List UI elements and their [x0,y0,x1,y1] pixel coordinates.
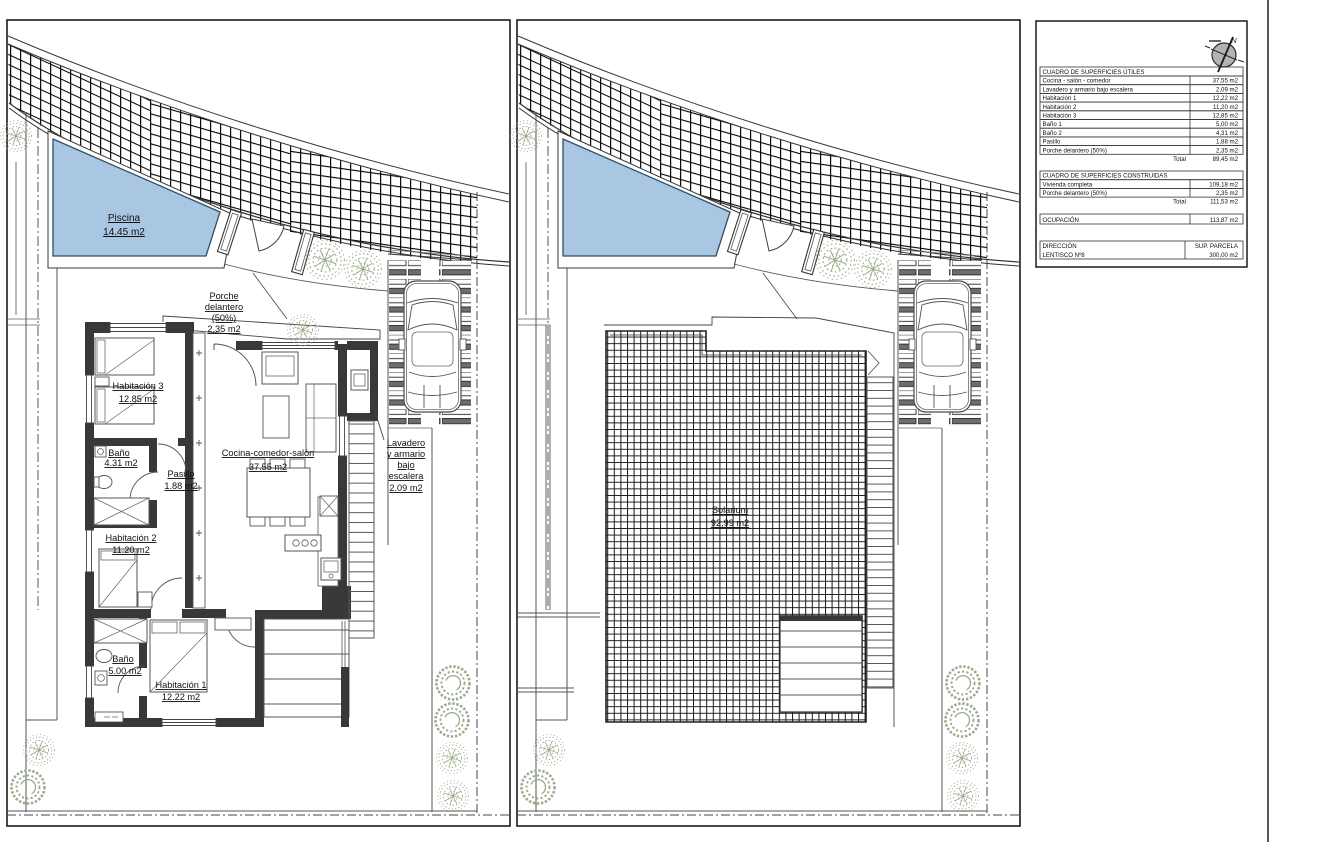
svg-text:Baño 2: Baño 2 [1043,130,1063,137]
svg-text:109,18 m2: 109,18 m2 [1209,181,1238,188]
svg-text:Porche delantero (50%): Porche delantero (50%) [1043,147,1107,154]
svg-text:Piscina: Piscina [108,213,141,224]
svg-text:Habitación 1: Habitación 1 [1043,95,1077,102]
svg-text:11.20 m2: 11.20 m2 [112,545,150,555]
svg-text:12,22 m2: 12,22 m2 [1213,95,1239,102]
svg-text:5.00 m2: 5.00 m2 [108,666,141,676]
svg-text:DIRECCIÓN: DIRECCIÓN [1043,243,1077,250]
svg-text:Habitación 1: Habitación 1 [155,680,206,690]
svg-text:Total: Total [1173,199,1186,206]
svg-text:Pasillo: Pasillo [167,469,194,479]
svg-text:Porche delantero (50%): Porche delantero (50%) [1043,190,1107,197]
svg-text:92,99 m2: 92,99 m2 [711,518,749,528]
svg-text:300,00 m2: 300,00 m2 [1209,252,1238,259]
svg-text:Solarium: Solarium [712,505,749,515]
svg-text:(50%): (50%) [212,313,237,323]
svg-text:y armario: y armario [387,449,425,459]
svg-text:2,35 m2: 2,35 m2 [1216,147,1239,154]
svg-text:1,88 m2: 1,88 m2 [1216,139,1239,146]
svg-text:113,87 m2: 113,87 m2 [1210,217,1239,224]
svg-text:Baño: Baño [112,654,133,664]
svg-text:SUP. PARCELA: SUP. PARCELA [1195,243,1239,250]
svg-text:CUADRO DE SUPERFICIES CONSTRUI: CUADRO DE SUPERFICIES CONSTRUIDAS [1043,173,1168,180]
svg-text:Lavadero: Lavadero [387,438,425,448]
svg-text:Baño 1: Baño 1 [1043,121,1063,128]
svg-text:Habitación 2: Habitación 2 [1043,104,1077,111]
svg-text:N: N [1231,36,1237,45]
svg-text:Total: Total [1173,156,1186,163]
svg-text:4.31 m2: 4.31 m2 [104,458,137,468]
svg-text:Lavadero y armario bajo escale: Lavadero y armario bajo escalera [1043,86,1134,93]
svg-text:37.55 m2: 37.55 m2 [249,462,287,472]
svg-text:2,35 m2: 2,35 m2 [1216,190,1239,197]
svg-text:Cocina-comedor-salón: Cocina-comedor-salón [222,448,314,458]
svg-text:4,31 m2: 4,31 m2 [1216,130,1239,137]
svg-text:12.85 m2: 12.85 m2 [119,394,157,404]
svg-text:89,45 m2: 89,45 m2 [1213,156,1239,163]
svg-text:CUADRO DE SUPERFICIES ÚTILES: CUADRO DE SUPERFICIES ÚTILES [1043,69,1145,76]
svg-text:2.09 m2: 2.09 m2 [389,483,422,493]
svg-text:Habitación 2: Habitación 2 [105,533,156,543]
svg-text:Habitación 3: Habitación 3 [1043,113,1077,120]
svg-text:Habitación 3: Habitación 3 [112,381,163,391]
svg-text:37,55 m2: 37,55 m2 [1213,78,1239,85]
svg-text:12.22 m2: 12.22 m2 [162,692,200,702]
svg-text:Baño: Baño [108,448,129,458]
svg-text:14.45 m2: 14.45 m2 [103,227,145,238]
svg-text:2.35 m2: 2.35 m2 [207,324,240,334]
svg-text:bajo: bajo [397,460,414,470]
svg-text:LENTISCO Nº8: LENTISCO Nº8 [1043,252,1086,259]
svg-text:Porche: Porche [209,291,238,301]
svg-text:Cocina - salón - comedor: Cocina - salón - comedor [1043,78,1111,85]
svg-text:delantero: delantero [205,302,243,312]
svg-text:1.88 m2: 1.88 m2 [164,481,197,491]
svg-text:5,00 m2: 5,00 m2 [1216,121,1239,128]
svg-text:Pasillo: Pasillo [1043,139,1062,146]
svg-text:2,09 m2: 2,09 m2 [1216,86,1239,93]
svg-text:11,20 m2: 11,20 m2 [1213,104,1239,111]
svg-text:escalera: escalera [389,471,425,481]
svg-text:12,85 m2: 12,85 m2 [1213,113,1239,120]
svg-text:Vivienda completa: Vivienda completa [1043,181,1093,188]
svg-text:111,53 m2: 111,53 m2 [1210,199,1239,206]
svg-text:OCUPACIÓN: OCUPACIÓN [1043,217,1079,224]
